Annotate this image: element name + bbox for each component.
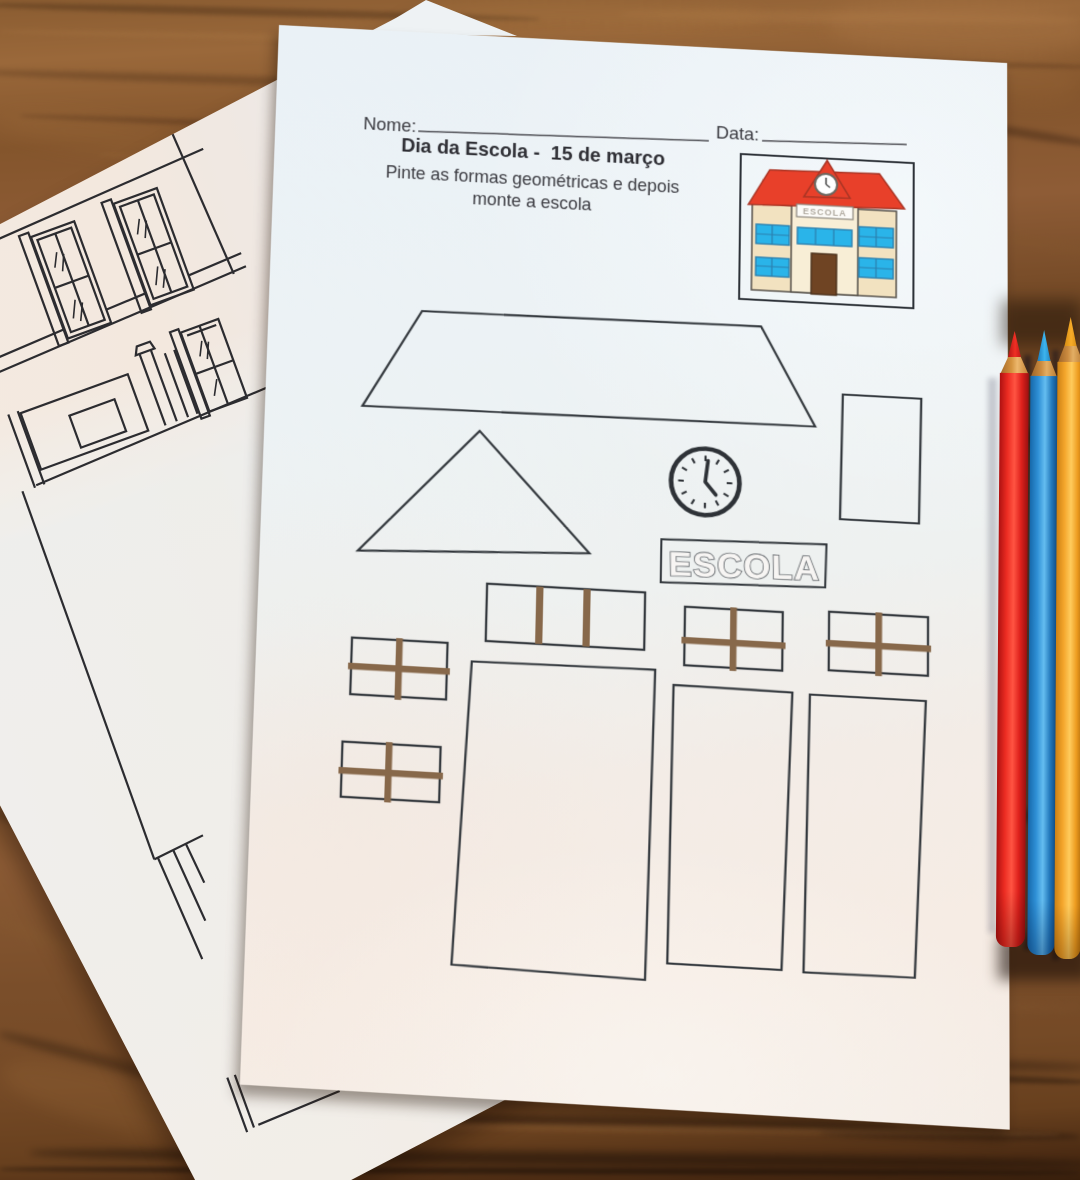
svg-text:Nome:: Nome:	[363, 114, 417, 136]
svg-text:monte a escola: monte a escola	[472, 189, 592, 214]
svg-text:ESCOLA: ESCOLA	[668, 544, 820, 587]
svg-text:Data:: Data:	[716, 123, 759, 145]
